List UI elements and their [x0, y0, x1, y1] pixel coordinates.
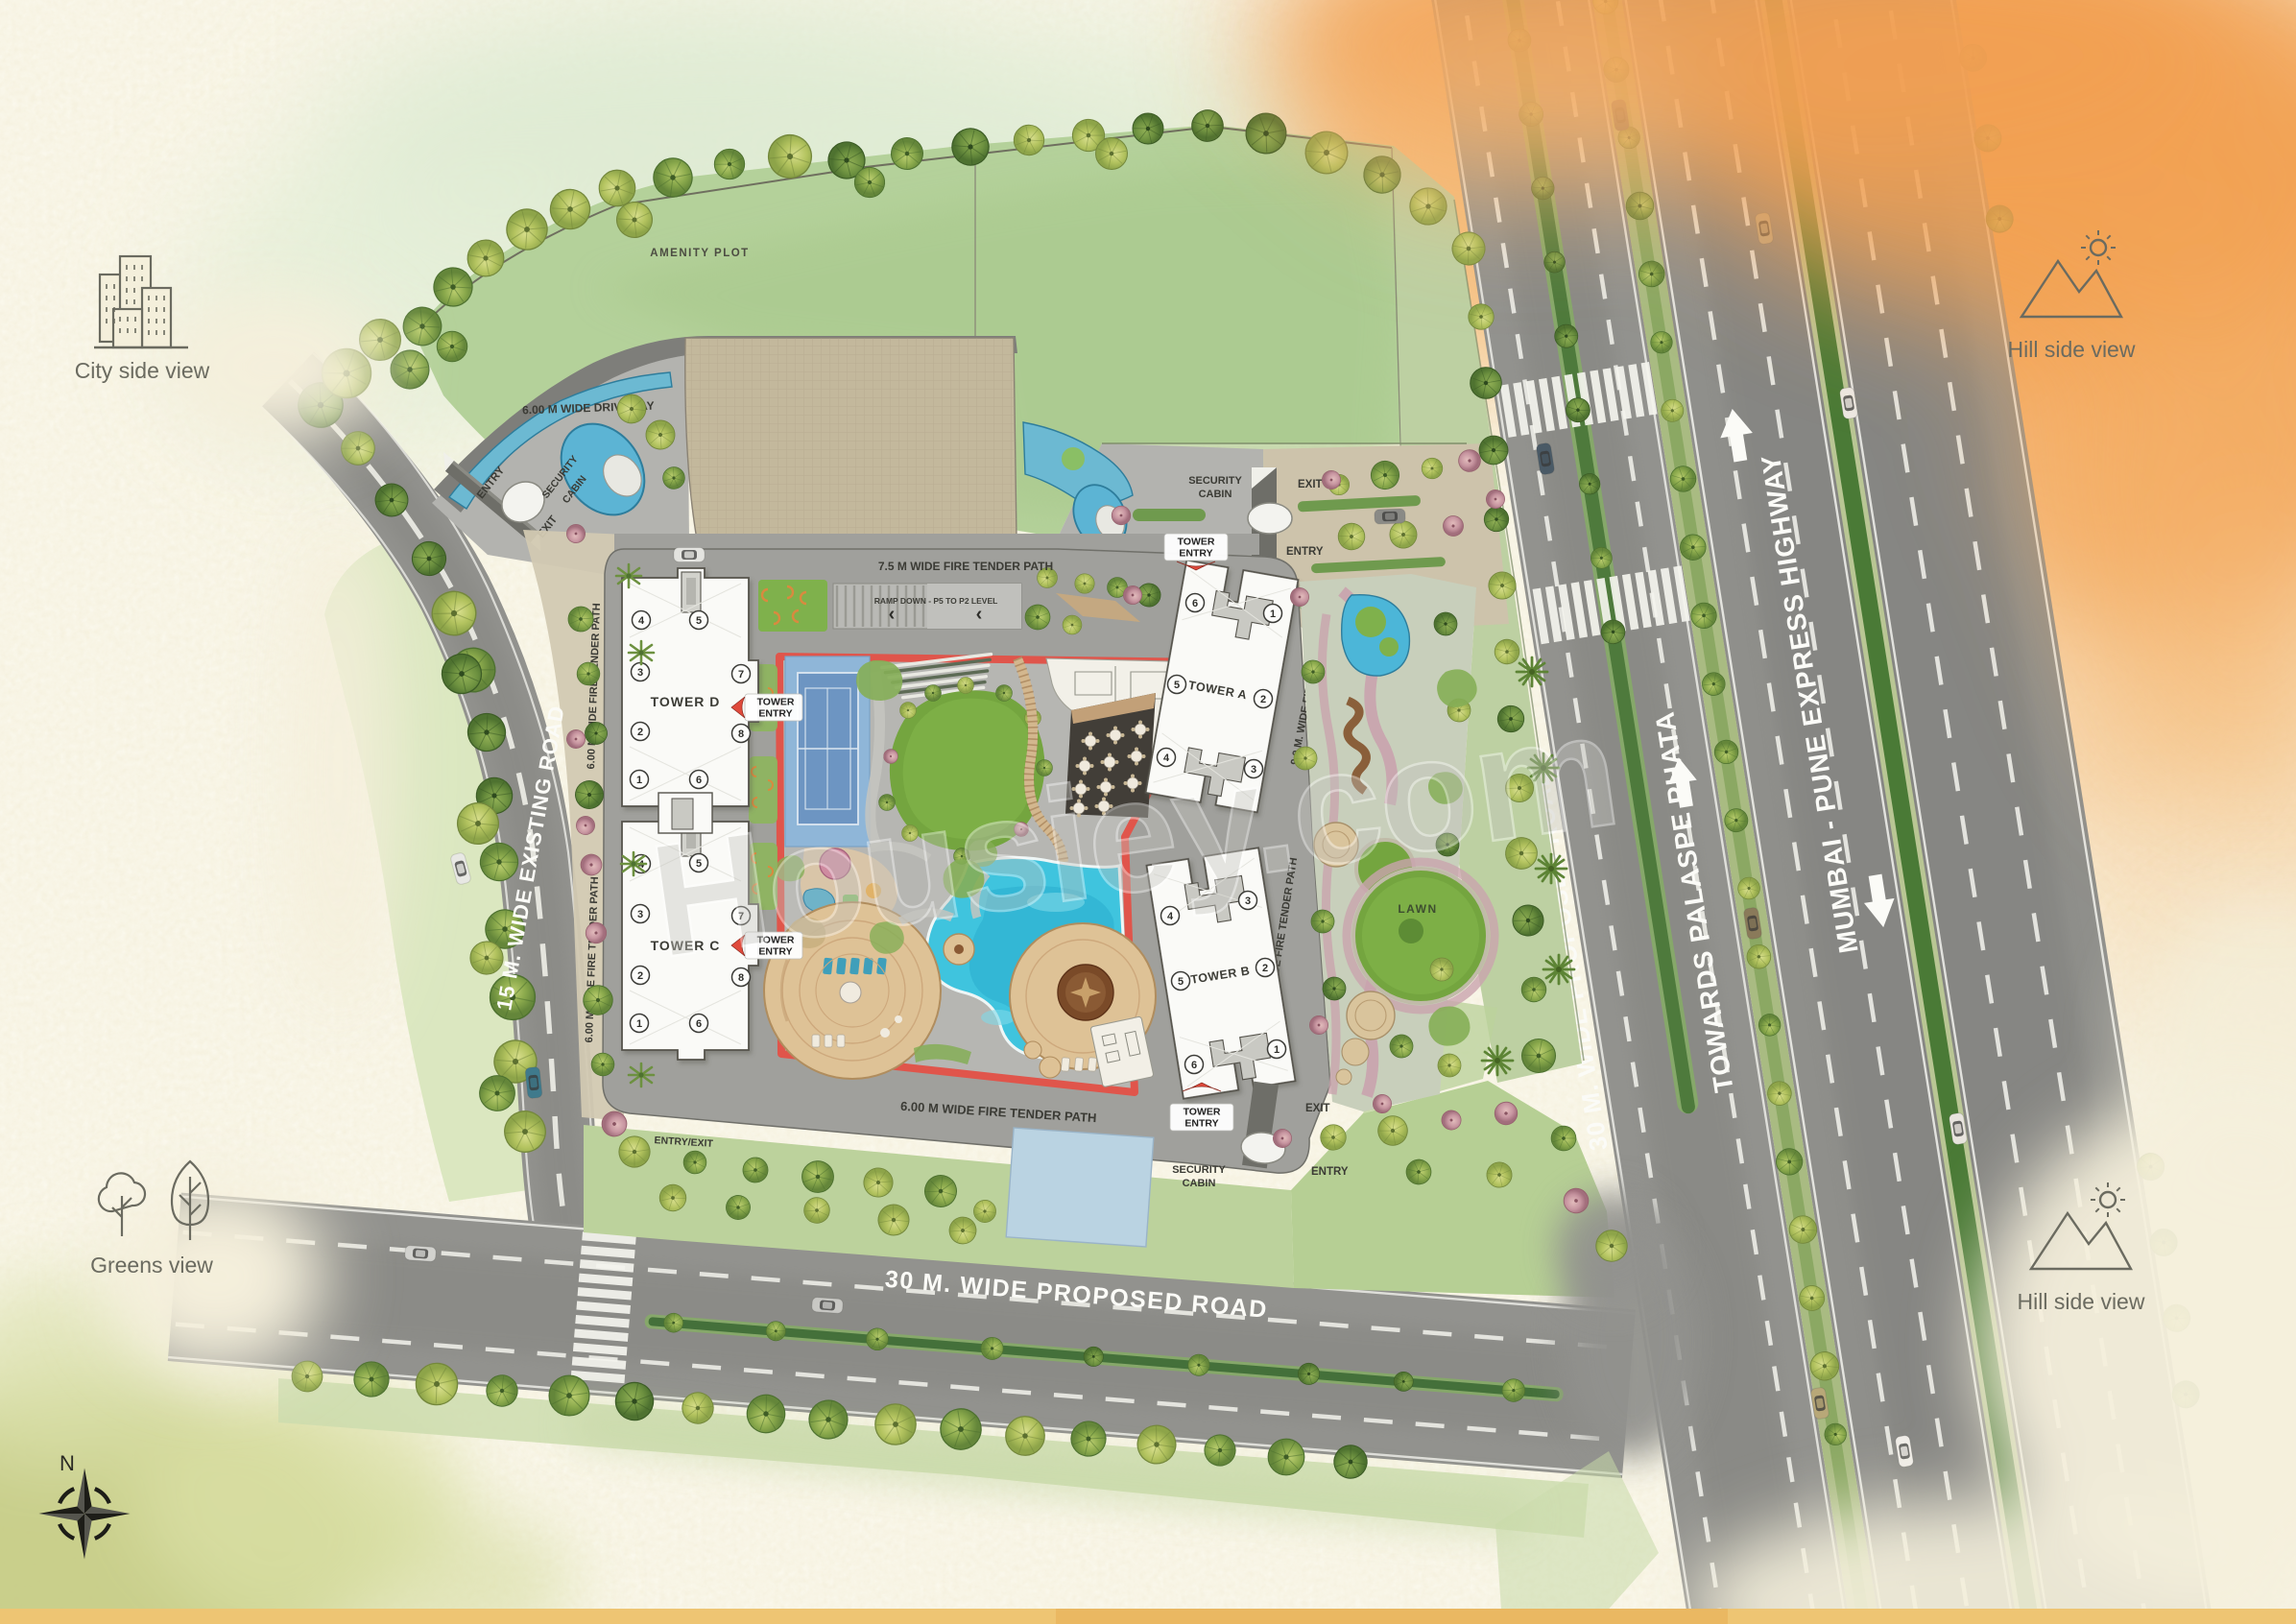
svg-text:AMENITY PLOT: AMENITY PLOT [650, 248, 749, 259]
svg-text:ENTRY: ENTRY [1184, 1118, 1218, 1130]
svg-text:CABIN: CABIN [1183, 1178, 1216, 1189]
svg-text:8: 8 [738, 728, 744, 740]
svg-text:5: 5 [696, 615, 702, 627]
svg-text:2: 2 [1262, 963, 1268, 974]
svg-text:7.5 M WIDE FIRE TENDER PATH: 7.5 M WIDE FIRE TENDER PATH [878, 560, 1053, 573]
svg-text:TOWER D: TOWER D [651, 694, 721, 709]
svg-text:1: 1 [636, 1018, 642, 1030]
svg-text:4: 4 [638, 615, 645, 627]
svg-text:1: 1 [636, 775, 642, 786]
svg-text:6: 6 [1191, 1060, 1197, 1071]
svg-text:1: 1 [1274, 1044, 1280, 1056]
svg-text:ENTRY: ENTRY [1179, 548, 1212, 560]
svg-text:Hill side view: Hill side view [2018, 1289, 2145, 1314]
svg-text:TOWER: TOWER [1178, 537, 1215, 548]
svg-text:2: 2 [1260, 694, 1266, 705]
svg-text:‹: ‹ [889, 604, 896, 625]
svg-text:ENTRY: ENTRY [758, 708, 792, 720]
svg-text:N: N [60, 1451, 75, 1475]
svg-text:2: 2 [637, 970, 643, 982]
svg-text:5: 5 [1178, 976, 1184, 988]
svg-text:SECURITY: SECURITY [1188, 475, 1242, 487]
svg-text:SECURITY: SECURITY [1172, 1164, 1226, 1176]
svg-text:6: 6 [696, 775, 702, 786]
svg-text:6: 6 [696, 1018, 702, 1030]
svg-text:5: 5 [1174, 680, 1180, 691]
svg-text:TOWER: TOWER [757, 697, 795, 708]
svg-text:7: 7 [738, 669, 744, 681]
svg-text:1: 1 [1270, 609, 1276, 620]
svg-text:‹: ‹ [976, 604, 983, 625]
svg-text:Greens view: Greens view [90, 1253, 213, 1278]
svg-text:City side view: City side view [75, 358, 210, 383]
svg-text:EXIT: EXIT [1298, 479, 1323, 490]
svg-text:Hill side view: Hill side view [2008, 337, 2136, 362]
svg-text:LAWN: LAWN [1398, 902, 1437, 916]
svg-text:CABIN: CABIN [1199, 489, 1232, 500]
svg-text:ENTRY: ENTRY [1286, 546, 1324, 558]
svg-text:EXIT: EXIT [1305, 1103, 1330, 1114]
svg-text:TOWER: TOWER [1184, 1107, 1221, 1118]
svg-text:ENTRY: ENTRY [1311, 1166, 1349, 1178]
svg-text:3: 3 [637, 909, 643, 920]
svg-text:2: 2 [637, 727, 643, 738]
svg-text:6: 6 [1192, 598, 1198, 609]
svg-text:3: 3 [637, 667, 643, 679]
